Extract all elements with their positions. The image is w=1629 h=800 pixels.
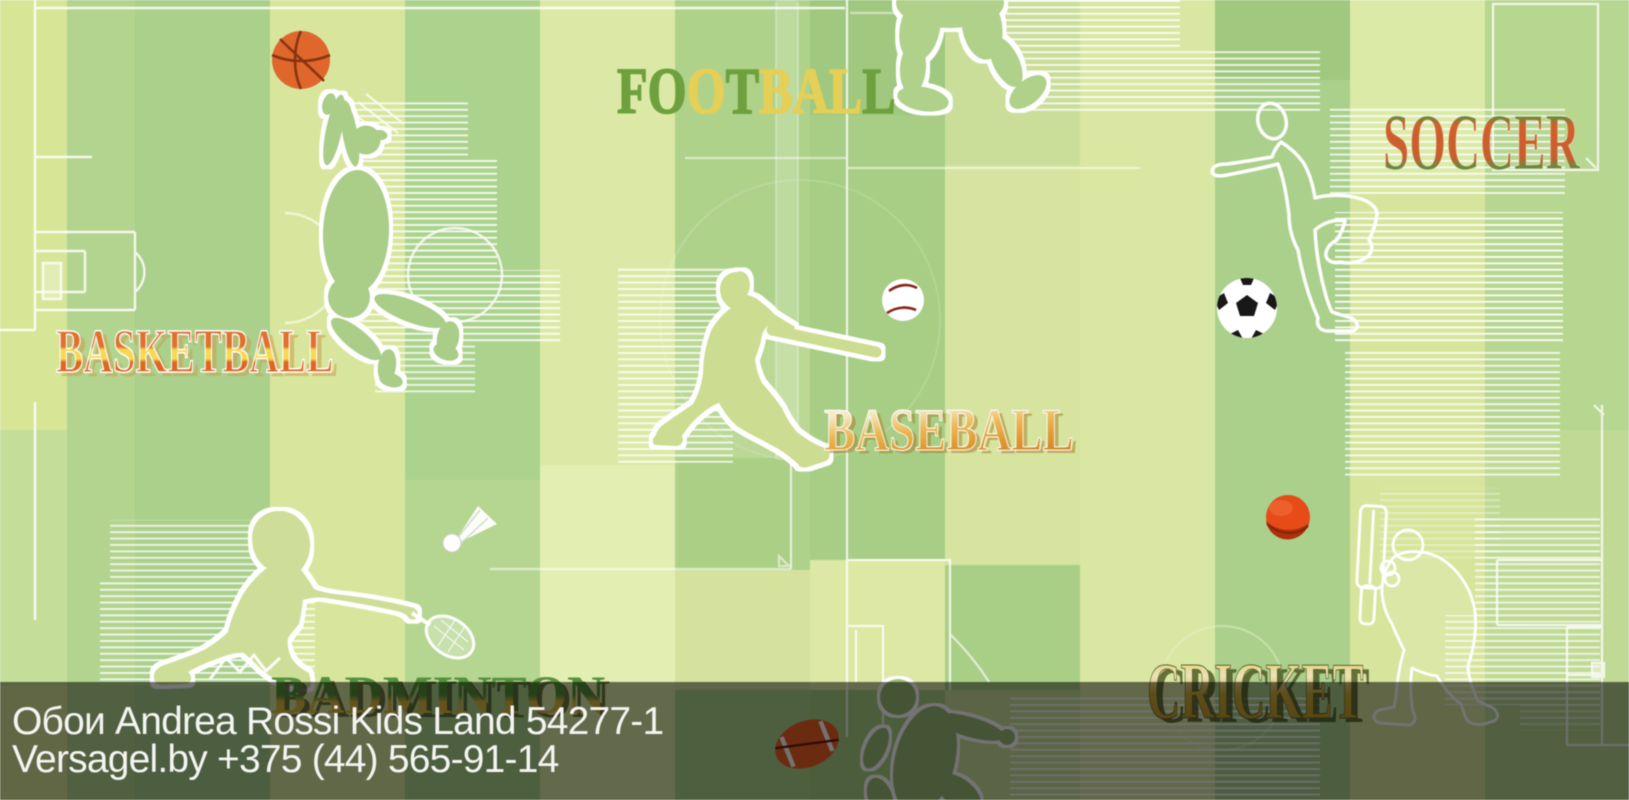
svg-text:SOCCER: SOCCER xyxy=(1383,98,1580,187)
svg-text:FOOTBALL: FOOTBALL xyxy=(617,54,896,127)
svg-text:Обои Andrea Rossi Kids Land 54: Обои Andrea Rossi Kids Land 54277-1 xyxy=(12,700,663,743)
svg-text:BASEBALL: BASEBALL xyxy=(824,396,1074,463)
svg-text:BASKETBALL: BASKETBALL xyxy=(56,318,333,386)
svg-text:Versagel.by +375 (44) 565-91-1: Versagel.by +375 (44) 565-91-14 xyxy=(12,738,559,781)
